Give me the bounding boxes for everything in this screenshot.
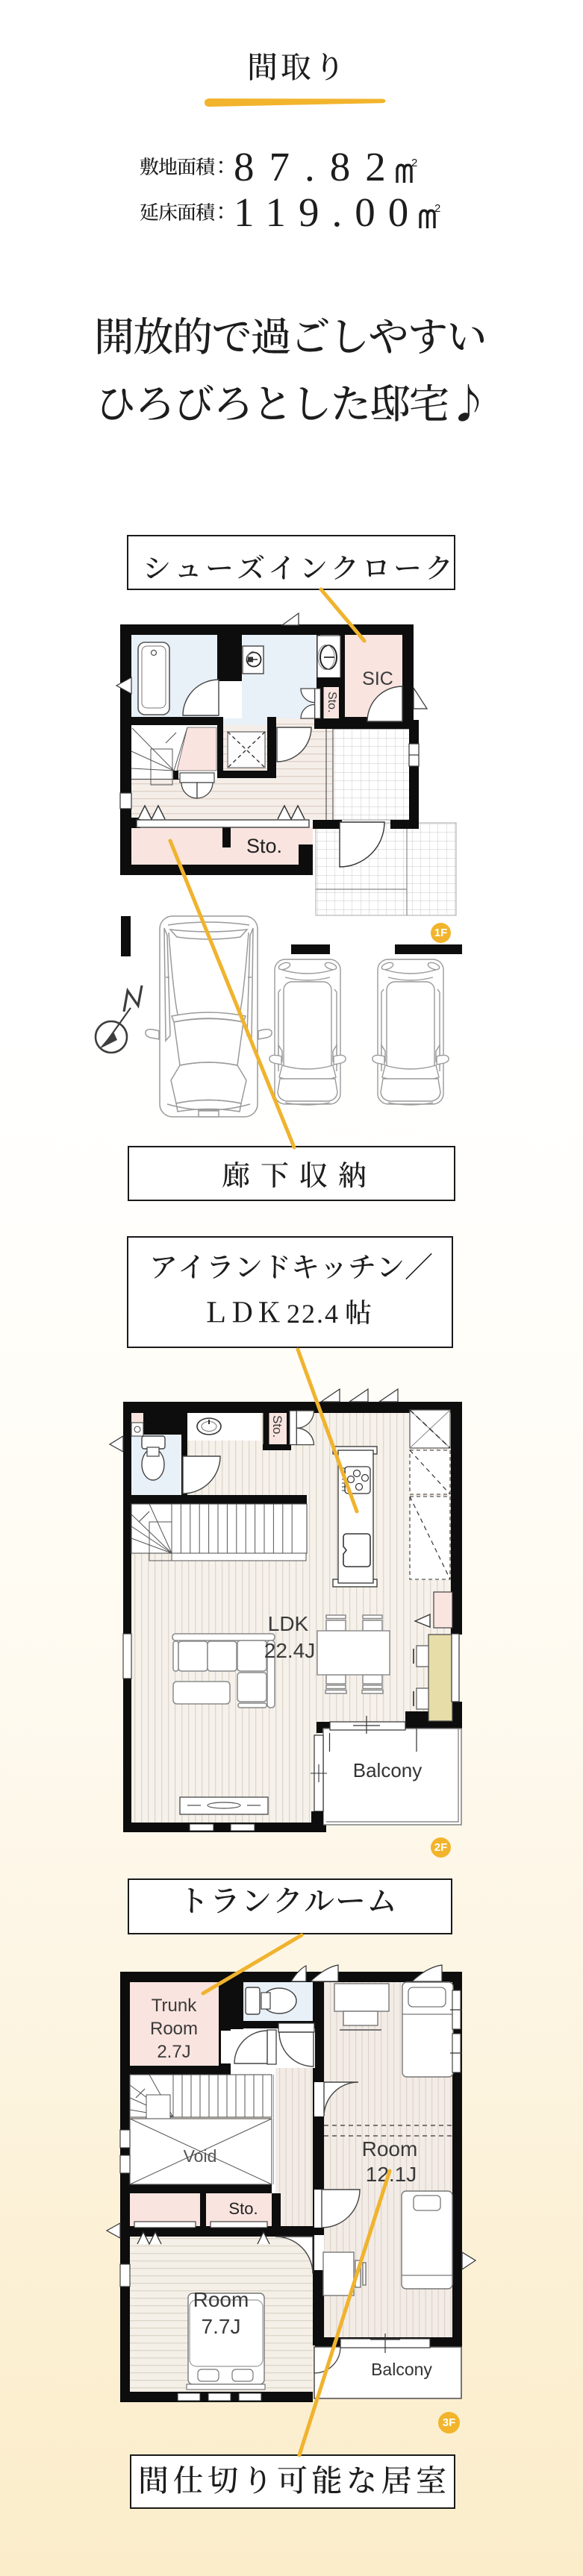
svg-text:2: 2 (411, 157, 417, 169)
svg-text:Room: Room (193, 2288, 249, 2311)
svg-text:7.7J: 7.7J (202, 2315, 241, 2338)
svg-text:Sto.: Sto. (246, 835, 282, 857)
svg-text:Trunk: Trunk (152, 1996, 197, 2016)
svg-text:LDK: LDK (268, 1612, 309, 1635)
svg-text:Balcony: Balcony (353, 1759, 423, 1781)
svg-text:Sto.: Sto. (228, 2199, 258, 2218)
svg-text:Sto.: Sto. (270, 1415, 284, 1438)
svg-text:Balcony: Balcony (371, 2360, 432, 2379)
svg-text:22.4J: 22.4J (264, 1639, 316, 1662)
svg-text:12.1J: 12.1J (366, 2163, 417, 2186)
svg-text:SIC: SIC (362, 668, 393, 689)
svg-text:Room: Room (150, 2019, 198, 2039)
svg-text:Room: Room (362, 2137, 418, 2160)
svg-text:Void: Void (184, 2146, 217, 2166)
svg-text:2: 2 (434, 202, 440, 215)
svg-text:Sto.: Sto. (325, 692, 338, 712)
svg-text:2.7J: 2.7J (157, 2042, 190, 2062)
